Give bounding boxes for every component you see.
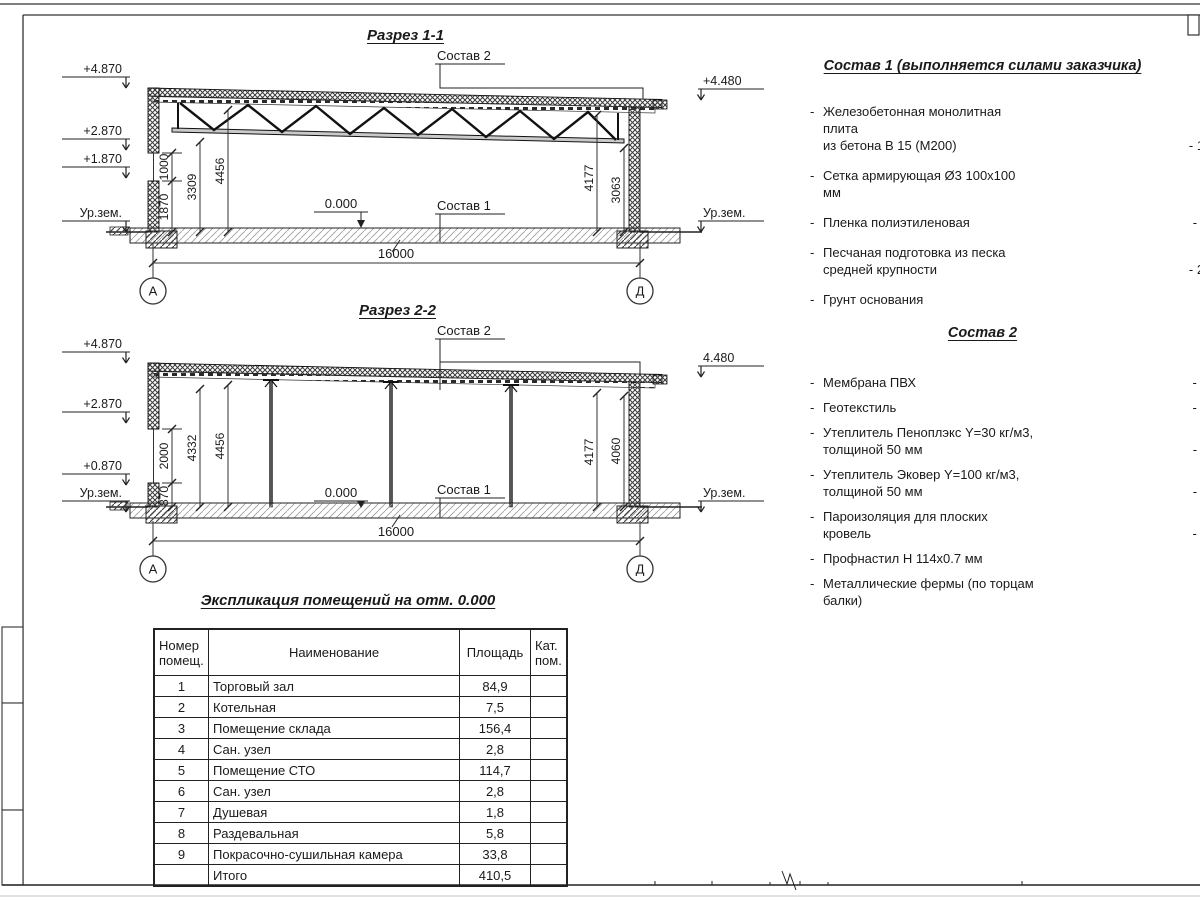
- cell-num: 8: [154, 823, 209, 844]
- cell-area: 1,8: [460, 802, 531, 823]
- list-item: - Мембрана ПВХ - 1 слой: [810, 374, 1155, 391]
- list-item: - Профнастил Н 114х0.7 мм: [810, 550, 1155, 567]
- roof-edge-block: [653, 100, 667, 109]
- cell-name: Душевая: [209, 802, 460, 823]
- sostav1-block: Состав 1 (выполняется силами заказчика) …: [810, 58, 1155, 321]
- cell-name: Помещение склада: [209, 718, 460, 739]
- item-line: Утеплитель Пеноплэкс Y=30 кг/м3,: [823, 424, 1035, 441]
- table-row: 3 Помещение склада 156,4: [154, 718, 567, 739]
- list-item: - Пленка полиэтиленовая - 2 слоя: [810, 214, 1155, 231]
- table-row: 8 Раздевальная 5,8: [154, 823, 567, 844]
- cell-area: 33,8: [460, 844, 531, 865]
- cell-num: [154, 865, 209, 887]
- elevation-marks-left: +4.870 +2.870 +1.870 Ур.зем.: [62, 62, 130, 232]
- margin-box: [2, 703, 23, 810]
- cell-num: 3: [154, 718, 209, 739]
- item-value: - 1 слой: [1192, 525, 1200, 542]
- span-dimension: 16000 А Д: [140, 243, 653, 304]
- titleblock-top-edge: [655, 871, 1022, 890]
- elev-2870: +2.870: [83, 124, 122, 138]
- cell-cat: [531, 697, 567, 718]
- elev-ground-left: Ур.зем.: [80, 206, 122, 220]
- col-header-area: Площадь: [460, 629, 531, 676]
- dim-3309: 3309: [185, 173, 199, 200]
- cell-cat: [531, 718, 567, 739]
- col-header-num: Номер помещ.: [154, 629, 209, 676]
- item-line: Металлические фермы (по торцам балки): [823, 575, 1035, 609]
- item-value: - 2 слоя: [1193, 441, 1200, 458]
- cell-name: Сан. узел: [209, 739, 460, 760]
- item-line: из бетона В 15 (М200): [823, 137, 1035, 154]
- cell-num: 5: [154, 760, 209, 781]
- axis-label-a: А: [149, 284, 158, 299]
- item-value: - 2 слоя: [1193, 214, 1200, 231]
- list-item: - Пароизоляция для плоских кровель - 1 с…: [810, 508, 1155, 542]
- section-1-1-title: Разрез 1-1: [338, 27, 473, 44]
- list-item: - Утеплитель Пеноплэкс Y=30 кг/м3, толщи…: [810, 424, 1155, 458]
- axis-label-d: Д: [636, 284, 645, 299]
- sostav2-list: - Мембрана ПВХ - 1 слой - Геотекстиль - …: [810, 374, 1155, 609]
- cell-cat: [531, 823, 567, 844]
- list-item: - Железобетонная монолитная плита из бет…: [810, 103, 1155, 154]
- table-row: 7 Душевая 1,8: [154, 802, 567, 823]
- bullet: -: [810, 374, 814, 391]
- item-line: Пленка полиэтиленовая: [823, 214, 1035, 231]
- section-2-2: 2000 870 4332 4456 4177 4060 0.000 Соста…: [62, 323, 764, 582]
- dim-870: 870: [157, 486, 171, 506]
- item-line: Мембрана ПВХ: [823, 374, 1035, 391]
- item-line: средней крупности: [823, 261, 1035, 278]
- margin-box: [2, 810, 23, 885]
- elev-4480: +4.480: [703, 74, 742, 88]
- frame-corner-box: [1188, 15, 1199, 35]
- margin-box: [2, 627, 23, 703]
- cell-cat: [531, 760, 567, 781]
- callout-sostav1-label: Состав 1: [437, 482, 491, 497]
- col-header-name: Наименование: [209, 629, 460, 676]
- elev-4480: 4.480: [703, 351, 734, 365]
- zero-level-mark: 0.000: [314, 196, 368, 228]
- zero-label: 0.000: [325, 485, 358, 500]
- sostav2-title: Состав 2: [810, 325, 1155, 342]
- cell-name: Котельная: [209, 697, 460, 718]
- cell-num: 2: [154, 697, 209, 718]
- elev-0870: +0.870: [83, 459, 122, 473]
- list-item: - Утеплитель Эковер Y=100 кг/м3, толщино…: [810, 466, 1155, 500]
- bullet: -: [810, 424, 814, 441]
- cell-area: 5,8: [460, 823, 531, 844]
- list-item: - Песчаная подготовка из песка средней к…: [810, 244, 1155, 278]
- bullet: -: [810, 466, 814, 483]
- roof-edge-block: [653, 375, 667, 384]
- cell-area: 156,4: [460, 718, 531, 739]
- bullet: -: [810, 508, 814, 525]
- cell-name: Торговый зал: [209, 676, 460, 697]
- elev-ground-right: Ур.зем.: [703, 486, 745, 500]
- item-value: - 150 мм: [1189, 137, 1200, 154]
- dim-1870: 1870: [157, 193, 171, 220]
- cell-name: Покрасочно-сушильная камера: [209, 844, 460, 865]
- col-header-cat: Кат. пом.: [531, 629, 567, 676]
- cell-num: 7: [154, 802, 209, 823]
- item-value: - 2 слоя: [1193, 483, 1200, 500]
- item-line: Сетка армирующая Ø3 100х100 мм: [823, 167, 1035, 201]
- left-wall: [148, 363, 159, 507]
- item-value: - 1 слой: [1192, 374, 1200, 391]
- cell-area: 2,8: [460, 739, 531, 760]
- zero-label: 0.000: [325, 196, 358, 211]
- dim-1000: 1000: [157, 153, 171, 180]
- item-line: Геотекстиль: [823, 399, 1035, 416]
- bullet: -: [810, 550, 814, 567]
- list-item: - Металлические фермы (по торцам балки): [810, 575, 1155, 609]
- elev-4870: +4.870: [83, 337, 122, 351]
- elev-1870: +1.870: [83, 152, 122, 166]
- cell-name: Сан. узел: [209, 781, 460, 802]
- cell-cat: [531, 676, 567, 697]
- span-dimension: 16000 А Д: [140, 521, 653, 582]
- list-item: - Сетка армирующая Ø3 100х100 мм: [810, 167, 1155, 201]
- foundation-pad: [146, 506, 177, 523]
- cell-num: 4: [154, 739, 209, 760]
- dim-2000: 2000: [157, 442, 171, 469]
- sostav1-title: Состав 1 (выполняется силами заказчика): [810, 58, 1155, 75]
- dim-16000: 16000: [378, 524, 414, 539]
- cell-area: 410,5: [460, 865, 531, 887]
- table-row: 6 Сан. узел 2,8: [154, 781, 567, 802]
- cell-name: Помещение СТО: [209, 760, 460, 781]
- elev-ground-right: Ур.зем.: [703, 206, 745, 220]
- axis-label-a: А: [149, 562, 158, 577]
- table-title: Экспликация помещений на отм. 0.000: [168, 592, 528, 609]
- dim-4332: 4332: [185, 434, 199, 461]
- section-2-2-title: Разрез 2-2: [330, 302, 465, 319]
- section-1-1: 1000 1870 3309 4456 4177 3063 0.000 Сост…: [62, 48, 764, 304]
- dims-left: 2000 870 4332 4456: [157, 381, 232, 511]
- cell-area: 7,5: [460, 697, 531, 718]
- callout-sostav2-label: Состав 2: [437, 323, 491, 338]
- cell-num: 1: [154, 676, 209, 697]
- table-row: 2 Котельная 7,5: [154, 697, 567, 718]
- callout-sostav1-label: Состав 1: [437, 198, 491, 213]
- item-value: - 1 слой: [1192, 399, 1200, 416]
- bullet: -: [810, 167, 814, 184]
- cell-cat: [531, 802, 567, 823]
- item-line: Железобетонная монолитная плита: [823, 103, 1035, 137]
- signature-mark: [782, 871, 796, 890]
- elevation-marks-right: 4.480 Ур.зем.: [698, 351, 765, 512]
- item-line: Профнастил Н 114х0.7 мм: [823, 550, 1035, 567]
- table-row: 9 Покрасочно-сушильная камера 33,8: [154, 844, 567, 865]
- bullet: -: [810, 399, 814, 416]
- dim-3063: 3063: [609, 176, 623, 203]
- cell-area: 2,8: [460, 781, 531, 802]
- cell-area: 114,7: [460, 760, 531, 781]
- elev-4870: +4.870: [83, 62, 122, 76]
- bullet: -: [810, 244, 814, 261]
- right-wall: [629, 382, 640, 507]
- bullet: -: [810, 214, 814, 231]
- table-row: 1 Торговый зал 84,9: [154, 676, 567, 697]
- elev-2870: +2.870: [83, 397, 122, 411]
- bullet: -: [810, 291, 814, 308]
- bullet: -: [810, 103, 814, 120]
- cell-num: 6: [154, 781, 209, 802]
- dim-4456: 4456: [213, 432, 227, 459]
- table-row: 5 Помещение СТО 114,7: [154, 760, 567, 781]
- item-line: Утеплитель Эковер Y=100 кг/м3,: [823, 466, 1035, 483]
- cell-name: Раздевальная: [209, 823, 460, 844]
- cell-cat: [531, 844, 567, 865]
- drawing-sheet: { "s11": { "title": "Разрез 1-1", "elev"…: [0, 0, 1200, 900]
- cell-area: 84,9: [460, 676, 531, 697]
- dim-16000: 16000: [378, 246, 414, 261]
- item-value: - 200 мм: [1189, 261, 1200, 278]
- cell-name: Итого: [209, 865, 460, 887]
- callout-sostav2-label: Состав 2: [437, 48, 491, 63]
- cell-cat: [531, 739, 567, 760]
- cell-num: 9: [154, 844, 209, 865]
- foundation-pad: [146, 231, 177, 248]
- callout-sostav2: Состав 2: [435, 48, 643, 99]
- table-row: 4 Сан. узел 2,8: [154, 739, 567, 760]
- room-schedule-table: Номер помещ. Наименование Площадь Кат. п…: [153, 628, 568, 887]
- cell-cat: [531, 865, 567, 887]
- cell-cat: [531, 781, 567, 802]
- elevation-marks-right: +4.480 Ур.зем.: [698, 74, 765, 232]
- list-item: - Геотекстиль - 1 слой: [810, 399, 1155, 416]
- axis-label-d: Д: [636, 562, 645, 577]
- item-line: Песчаная подготовка из песка: [823, 244, 1035, 261]
- item-line: толщиной 50 мм: [823, 441, 1035, 458]
- dim-4177: 4177: [582, 164, 596, 191]
- item-line: Пароизоляция для плоских кровель: [823, 508, 1035, 542]
- dim-4456: 4456: [213, 157, 227, 184]
- table-row-total: Итого 410,5: [154, 865, 567, 887]
- elev-ground-left: Ур.зем.: [80, 486, 122, 500]
- dim-4177: 4177: [582, 438, 596, 465]
- item-line: Грунт основания: [823, 291, 1035, 308]
- dims-right: 4177 4060: [582, 389, 628, 511]
- sostav2-block: Состав 2 - Мембрана ПВХ - 1 слой - Геоте…: [810, 325, 1155, 617]
- right-wall: [629, 107, 640, 232]
- dim-4060: 4060: [609, 437, 623, 464]
- item-line: толщиной 50 мм: [823, 483, 1035, 500]
- elevation-marks-left: +4.870 +2.870 +0.870 Ур.зем.: [62, 337, 130, 512]
- bullet: -: [810, 575, 814, 592]
- list-item: - Грунт основания: [810, 291, 1155, 308]
- table-header-row: Номер помещ. Наименование Площадь Кат. п…: [154, 629, 567, 676]
- sostav1-list: - Железобетонная монолитная плита из бет…: [810, 103, 1155, 308]
